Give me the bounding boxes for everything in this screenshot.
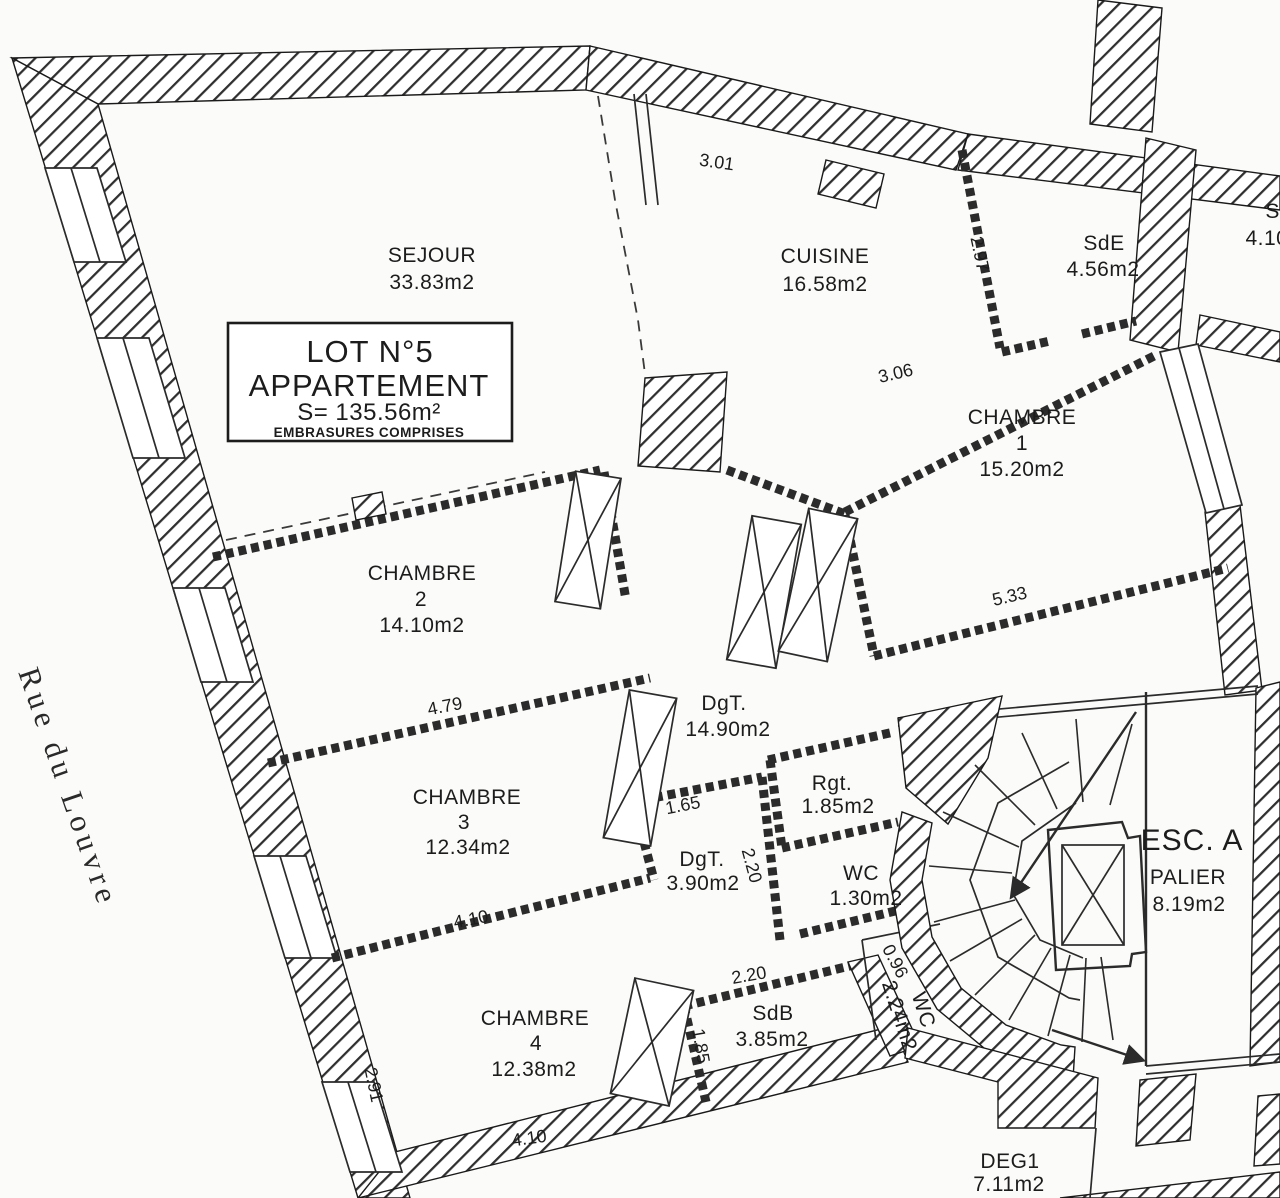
label-dgt-small: DgT.	[679, 848, 724, 871]
lot-title-box: LOT N°5 APPARTEMENT S= 135.56m² EMBRASUR…	[228, 323, 512, 441]
cuisine-bottom-wall	[727, 470, 845, 514]
dim-2-97: 2.97	[966, 235, 993, 273]
label-esc-a: ESC. A	[1141, 824, 1244, 857]
label-deg1: DEG1	[980, 1150, 1039, 1173]
dim-3-01: 3.01	[698, 150, 735, 175]
label-sde-area: 4.56m2	[1066, 258, 1139, 281]
floor-plan-page: LOT N°5 APPARTEMENT S= 135.56m² EMBRASUR…	[0, 0, 1280, 1198]
window-right-chambre1	[1160, 344, 1242, 513]
lot-line4: EMBRASURES COMPRISES	[274, 425, 465, 440]
label-chambre2-area: 14.10m2	[379, 614, 464, 637]
chambre1-bottom-wall	[874, 568, 1228, 656]
sejour-cuisine-stub-b	[646, 94, 658, 205]
label-cuisine-area: 16.58m2	[782, 273, 867, 296]
chambre2-chambre3-wall	[268, 678, 650, 763]
right-facade-lower-wall	[1205, 505, 1262, 695]
label-sejour-area: 33.83m2	[389, 271, 474, 294]
sejour-cuisine-stub-a	[634, 94, 646, 205]
sde-bottom-wall-a	[1002, 341, 1050, 352]
chambre3-chambre4-wall	[332, 878, 650, 958]
top-right-stub-wall	[1090, 0, 1162, 132]
label-palier: PALIER	[1150, 866, 1226, 889]
top-right-wall	[958, 134, 1280, 210]
closet-1	[555, 471, 621, 609]
label-chambre3: CHAMBRE	[413, 786, 522, 809]
central-chimney	[638, 372, 727, 472]
label-cuisine: CUISINE	[781, 245, 870, 268]
top-wall	[12, 46, 590, 104]
label-chambre3-num: 3	[458, 811, 470, 834]
floor-plan-svg: LOT N°5 APPARTEMENT S= 135.56m² EMBRASUR…	[0, 0, 1280, 1198]
sdb-right-bottom-wall	[1196, 315, 1280, 362]
deg1-bottom-strip	[1060, 1172, 1280, 1198]
closet-2	[603, 690, 676, 846]
stair-wedge-wall	[898, 696, 1002, 824]
dim-4-79: 4.79	[426, 693, 464, 719]
label-sdb-area: 3.85m2	[735, 1028, 808, 1051]
label-chambre1-num: 1	[1016, 432, 1028, 455]
chambre3-dgt-wall-stub	[644, 842, 654, 880]
label-sde: SdE	[1083, 232, 1124, 255]
label-deg1-area: 7.11m2	[973, 1173, 1045, 1196]
elevator-shaft	[1048, 822, 1146, 970]
label-sdb: SdB	[752, 1002, 793, 1025]
deg1-block-b	[1254, 1094, 1280, 1166]
label-chambre4-area: 12.38m2	[491, 1058, 576, 1081]
street-name-label: Rue du Louvre	[11, 663, 126, 912]
label-palier-area: 8.19m2	[1152, 893, 1225, 916]
lot-line1: LOT N°5	[306, 334, 433, 369]
palier-right-wall	[1250, 682, 1280, 1066]
label-dgt-main: DgT.	[701, 692, 746, 715]
deg1-block-a	[1136, 1074, 1196, 1146]
label-chambre2-num: 2	[415, 588, 427, 611]
dim-5-33: 5.33	[990, 582, 1029, 609]
rgt-top-wall	[768, 732, 894, 760]
label-rgt: Rgt.	[812, 772, 853, 795]
label-chambre4: CHAMBRE	[481, 1007, 590, 1030]
dim-3-06: 3.06	[876, 359, 915, 386]
label-chambre1-area: 15.20m2	[979, 458, 1064, 481]
cuisine-chimney-bump	[818, 160, 884, 208]
label-chambre3-area: 12.34m2	[425, 836, 510, 859]
label-sejour: SEJOUR	[388, 244, 476, 267]
cuisine-top-wall	[586, 46, 968, 170]
dim-2-20-a: 2.20	[738, 846, 766, 885]
label-chambre2: CHAMBRE	[368, 562, 477, 585]
label-rgt-area: 1.85m2	[801, 795, 874, 818]
label-dgt-small-area: 3.90m2	[666, 872, 739, 895]
lot-line3: S= 135.56m²	[297, 399, 441, 426]
staircase	[890, 692, 1146, 1128]
lot-line2: APPARTEMENT	[249, 368, 490, 403]
sde-bottom-wall-b	[1082, 321, 1136, 334]
sejour-chambre2-wall	[213, 470, 600, 557]
label-wc-small-area: 1.30m2	[829, 887, 902, 910]
label-wc-small: WC	[843, 862, 879, 885]
label-sdb-right-area: 4.10m2	[1245, 227, 1280, 250]
stair-arrow-down	[1012, 712, 1136, 896]
sdb-top-wall	[684, 965, 854, 1006]
label-dgt-main-area: 14.90m2	[685, 718, 770, 741]
dim-4-10-a: 4.10	[452, 906, 490, 932]
label-chambre4-num: 4	[530, 1032, 542, 1055]
sejour-dashed-boundary	[226, 472, 545, 540]
label-sdb-right: SdB	[1265, 200, 1280, 223]
rgt-bottom-wall	[782, 822, 898, 848]
label-chambre1: CHAMBRE	[968, 406, 1077, 429]
